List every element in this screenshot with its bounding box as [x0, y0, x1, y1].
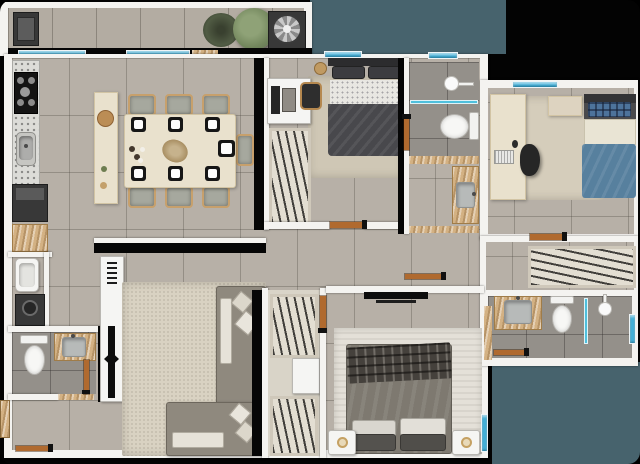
- ensuite-sink: [504, 300, 532, 324]
- burner-1: [17, 77, 24, 84]
- refrigerator-top: [16, 188, 44, 200]
- kitchen-living-wall-core: [94, 243, 266, 253]
- floor-plan-canvas: [0, 0, 640, 464]
- plate-7: [218, 140, 235, 157]
- bathmid-floor: [409, 62, 479, 156]
- door-hook-8: [441, 272, 446, 280]
- sink-social: [62, 337, 86, 357]
- shower-head-mid: [444, 76, 459, 91]
- toilet-mid-bowl: [440, 114, 469, 139]
- ensuite-window: [629, 314, 636, 344]
- side-shaft: [0, 400, 10, 438]
- office-chair: [520, 144, 540, 176]
- toilet-mid-tank: [469, 112, 479, 140]
- plate-5: [168, 166, 183, 181]
- ensuite-toilet-bowl: [552, 305, 572, 333]
- plate-2: [168, 117, 183, 132]
- ensuite-shower-head: [598, 302, 612, 316]
- desk-shelf: [282, 88, 296, 112]
- desk-monitor: [271, 86, 280, 114]
- bedroom2-window: [512, 81, 558, 88]
- ensuite-faucet: [516, 296, 520, 300]
- bathmid-window: [428, 52, 458, 59]
- centerpiece-egg-2: [138, 158, 143, 163]
- master-tv-shelf: [376, 300, 416, 303]
- dining-chair-3: [202, 94, 230, 116]
- hall-closet-wardrobe: [528, 246, 636, 288]
- bedroom2-plaid-pillow: [588, 102, 631, 117]
- dining-chair-6: [202, 186, 230, 208]
- door-hook-7: [318, 328, 327, 333]
- bedroom1-headboard: [328, 58, 404, 66]
- dining-chair-2: [165, 94, 193, 116]
- console-decor: [107, 262, 117, 284]
- dining-chair-5: [165, 186, 193, 208]
- dining-chair-1: [128, 94, 156, 116]
- ensuite-threshold: [484, 306, 492, 360]
- plate-4: [131, 166, 146, 181]
- bedroom2-duvet: [582, 144, 636, 198]
- bedroom1-door: [330, 222, 364, 228]
- master-pillow-dark-2: [400, 434, 446, 451]
- door-hook-1: [82, 390, 90, 394]
- bedroom1-pillow-2: [368, 66, 401, 79]
- vanity-room-threshold-top: [409, 156, 479, 164]
- bathroom-social-door: [84, 360, 89, 394]
- bathroom-social-threshold: [58, 394, 94, 400]
- bedroom2-door: [530, 234, 564, 240]
- bedroom2-desk: [490, 94, 526, 200]
- master-wall-tv: [364, 292, 428, 299]
- bedroom1-window: [324, 51, 362, 58]
- mouse: [512, 140, 518, 148]
- vanity-room-threshold-bottom: [409, 226, 479, 233]
- lamp-right: [461, 437, 472, 448]
- door-hook-2: [48, 444, 53, 452]
- sofa-seat-cushion: [172, 432, 224, 448]
- bedroom1-wardrobe: [269, 128, 311, 228]
- plate-3: [205, 117, 220, 132]
- bedroom1-wall-bottom-a: [264, 222, 330, 229]
- master-plaid-throw: [346, 342, 452, 383]
- kitchen-sink-basin: [19, 136, 33, 160]
- bedroom2-nightstand: [548, 96, 582, 116]
- island-decor-bowl: [100, 182, 107, 189]
- bedroom1-duvet: [328, 104, 404, 156]
- toilet-social-bowl: [24, 345, 45, 375]
- vanity-room-faucet: [472, 192, 476, 196]
- door-hook-5: [562, 232, 567, 241]
- service-cabinet: [12, 224, 48, 252]
- dining-chair-4: [128, 186, 156, 208]
- sofa-back-cushion: [220, 298, 232, 364]
- bedside-stool: [314, 62, 327, 75]
- door-hook-6: [524, 348, 529, 356]
- burner-4: [28, 99, 35, 106]
- outdoor-area-top: [310, 0, 506, 54]
- bedroom1-sheet: [330, 80, 402, 106]
- bathmid-door: [404, 118, 409, 150]
- washer-door: [22, 300, 38, 316]
- plate-6: [205, 166, 220, 181]
- fan-hub: [283, 25, 291, 33]
- bedroom1-pillow-1: [332, 66, 365, 79]
- kitchen-faucet: [24, 144, 28, 148]
- centerpiece-egg: [140, 147, 145, 152]
- shower-glass-mid: [410, 100, 478, 104]
- suite-door: [405, 274, 443, 279]
- faucet-social: [71, 334, 75, 338]
- island-decor-green: [101, 166, 107, 172]
- bathroom-social-wall-bottom: [8, 394, 58, 400]
- burner-5: [20, 87, 30, 97]
- laundry-sink-basin: [19, 263, 35, 287]
- cutting-board: [97, 110, 114, 127]
- ensuite-toilet-tank: [550, 296, 574, 304]
- dining-chair-7: [236, 134, 254, 166]
- closet-door: [320, 296, 326, 330]
- centerpiece-berries: [129, 146, 135, 152]
- bedroom1-chair: [300, 82, 322, 110]
- burner-3: [17, 99, 24, 106]
- outdoor-area-bottom-right: [492, 362, 640, 464]
- barbecue-grill-lid: [17, 17, 35, 41]
- bedroom1-wall-core: [254, 58, 264, 230]
- toilet-social-tank: [20, 335, 48, 344]
- plate-1: [131, 117, 146, 132]
- ensuite-shower-glass: [584, 298, 588, 344]
- ensuite-door: [494, 350, 526, 355]
- closet-shelf-unit: [292, 358, 320, 394]
- closet-section-top: [270, 294, 318, 358]
- lamp-left: [337, 437, 348, 448]
- keyboard: [494, 150, 514, 164]
- master-pillow-dark-1: [352, 434, 396, 451]
- door-hook-4: [402, 114, 411, 119]
- closet-wall-core: [252, 290, 262, 456]
- burner-2: [28, 77, 35, 84]
- entry-door: [16, 446, 50, 451]
- closet-section-bottom: [270, 396, 318, 456]
- door-hook-3: [362, 220, 367, 229]
- master-window: [481, 414, 488, 452]
- bedroom2-blanket: [584, 119, 636, 145]
